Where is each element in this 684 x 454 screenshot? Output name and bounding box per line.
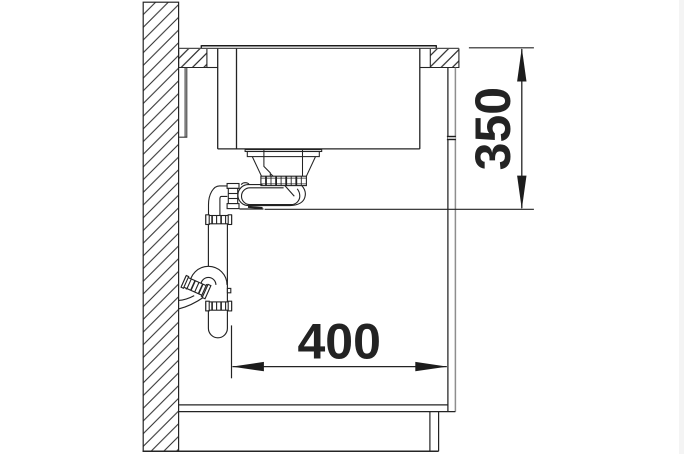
- svg-text:350: 350: [465, 87, 521, 170]
- svg-text:400: 400: [297, 314, 380, 370]
